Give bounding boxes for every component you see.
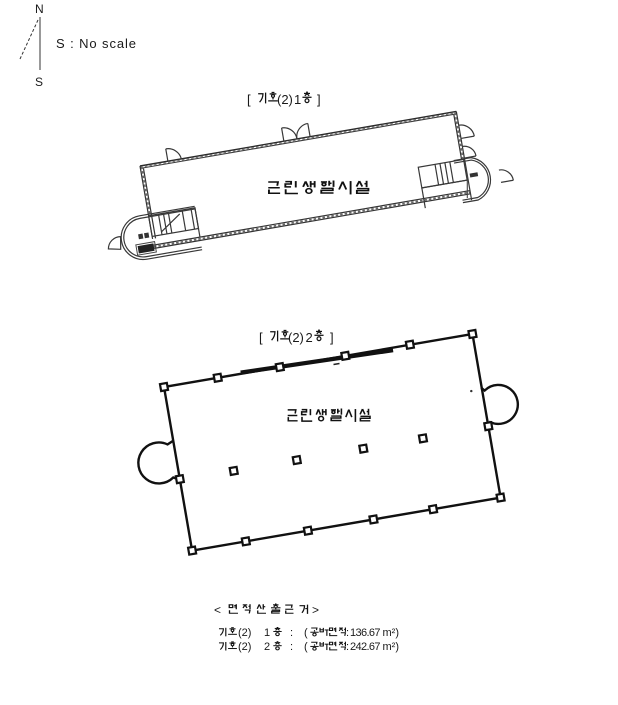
svg-text:<: < (214, 603, 221, 617)
svg-text:(2): (2) (288, 330, 304, 345)
svg-text:(: ( (304, 641, 308, 653)
svg-text:S : No scale: S : No scale (56, 36, 136, 51)
svg-text:[: [ (259, 330, 263, 345)
svg-text:136.67: 136.67 (350, 627, 381, 639)
svg-text::: : (290, 641, 293, 653)
svg-text:]: ] (317, 92, 321, 107)
svg-text:1: 1 (294, 92, 301, 107)
svg-text:S: S (35, 75, 43, 89)
svg-text:(2): (2) (238, 627, 251, 639)
svg-text:(2): (2) (277, 92, 293, 107)
svg-text:[: [ (247, 92, 251, 107)
svg-text::: : (290, 627, 293, 639)
svg-text::: : (346, 627, 349, 639)
svg-text:(: ( (304, 627, 308, 639)
svg-text:]: ] (330, 330, 334, 345)
svg-text:2: 2 (306, 330, 313, 345)
svg-text:2: 2 (264, 641, 270, 653)
svg-text:242.67: 242.67 (350, 641, 381, 653)
svg-text:1: 1 (264, 627, 270, 639)
svg-text:m²): m²) (383, 627, 400, 639)
svg-text:N: N (35, 2, 44, 16)
svg-text::: : (346, 641, 349, 653)
svg-text:m²): m²) (383, 641, 400, 653)
svg-text:(2): (2) (238, 641, 251, 653)
svg-text:>: > (312, 603, 319, 617)
